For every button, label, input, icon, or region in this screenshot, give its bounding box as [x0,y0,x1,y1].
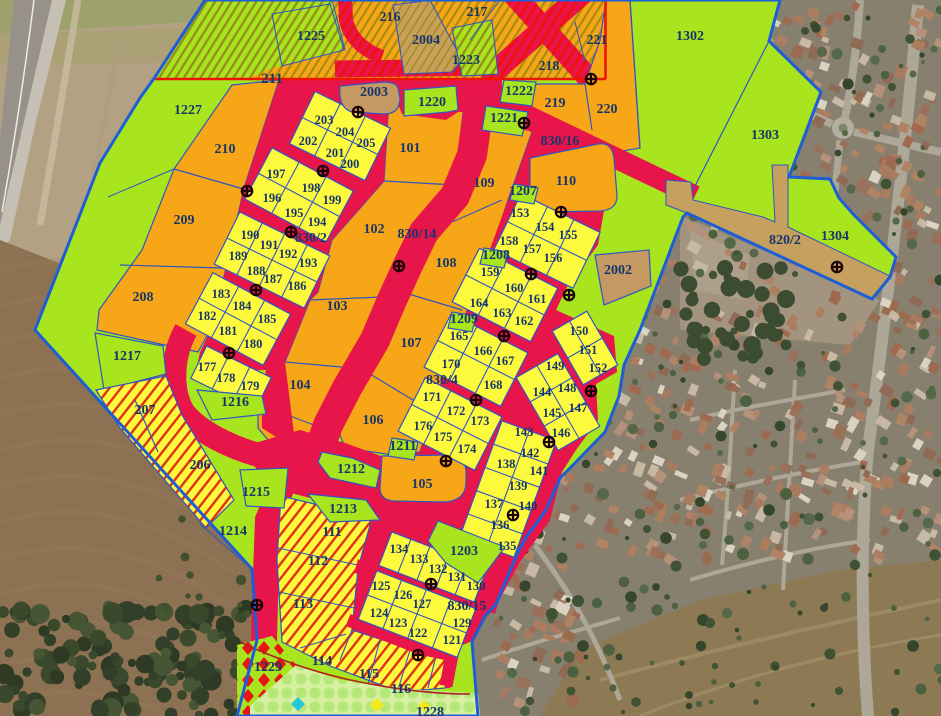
svg-text:150: 150 [570,324,589,338]
svg-text:112: 112 [308,554,328,569]
svg-text:1214: 1214 [219,524,247,539]
svg-text:1303: 1303 [751,128,779,143]
svg-text:1220: 1220 [418,95,446,110]
svg-text:126: 126 [394,588,413,602]
svg-text:1217: 1217 [113,349,141,364]
svg-text:830/2: 830/2 [295,231,327,246]
svg-text:163: 163 [493,306,512,320]
svg-text:158: 158 [500,234,519,248]
svg-text:200: 200 [341,157,360,171]
svg-text:208: 208 [133,290,154,305]
svg-text:105: 105 [412,477,433,492]
svg-text:176: 176 [414,419,433,433]
svg-text:107: 107 [401,336,422,351]
svg-text:1229: 1229 [254,660,282,675]
svg-text:133: 133 [410,552,429,566]
svg-text:179: 179 [241,379,260,393]
svg-text:147: 147 [569,401,588,415]
svg-text:123: 123 [389,616,408,630]
svg-text:190: 190 [241,228,260,242]
svg-text:125: 125 [372,579,391,593]
svg-text:1207: 1207 [509,184,537,199]
svg-text:830/16: 830/16 [541,134,580,149]
svg-text:206: 206 [190,458,211,473]
svg-text:113: 113 [293,597,313,612]
svg-text:146: 146 [552,426,571,440]
svg-text:1227: 1227 [174,103,202,118]
svg-text:160: 160 [505,281,524,295]
svg-text:1216: 1216 [221,395,249,410]
svg-text:130: 130 [467,579,486,593]
svg-text:166: 166 [474,344,493,358]
svg-text:102: 102 [364,222,385,237]
svg-text:197: 197 [267,167,286,181]
svg-text:144: 144 [533,385,553,399]
svg-text:1203: 1203 [450,544,478,559]
svg-text:155: 155 [559,228,578,242]
svg-text:193: 193 [299,256,318,270]
svg-text:189: 189 [229,249,248,263]
svg-text:1302: 1302 [676,29,704,44]
svg-text:134: 134 [390,542,410,556]
svg-text:195: 195 [285,206,304,220]
svg-text:165: 165 [450,329,469,343]
svg-text:168: 168 [484,378,503,392]
svg-text:1212: 1212 [337,462,365,477]
svg-text:199: 199 [323,193,342,207]
svg-text:151: 151 [579,343,598,357]
svg-text:153: 153 [511,206,530,220]
svg-text:138: 138 [497,457,516,471]
svg-text:1304: 1304 [821,229,849,244]
svg-text:182: 182 [198,309,217,323]
svg-text:149: 149 [546,359,565,373]
svg-text:164: 164 [470,296,490,310]
svg-text:2002: 2002 [604,263,632,278]
svg-text:173: 173 [471,414,490,428]
svg-text:205: 205 [357,136,376,150]
svg-text:143: 143 [515,425,534,439]
svg-text:156: 156 [544,251,563,265]
svg-text:221: 221 [587,33,608,48]
svg-text:121: 121 [443,633,462,647]
svg-text:1213: 1213 [329,502,357,517]
svg-text:1223: 1223 [452,53,480,68]
svg-text:1225: 1225 [297,29,325,44]
svg-text:170: 170 [442,357,461,371]
svg-text:830/4: 830/4 [426,373,458,388]
svg-text:202: 202 [299,134,318,148]
svg-text:101: 101 [400,141,421,156]
svg-text:157: 157 [523,242,542,256]
svg-text:194: 194 [308,215,328,229]
svg-text:175: 175 [434,430,453,444]
svg-text:185: 185 [258,312,277,326]
svg-text:196: 196 [263,191,282,205]
svg-text:178: 178 [217,371,236,385]
svg-text:184: 184 [233,299,253,313]
svg-text:104: 104 [290,378,311,393]
svg-text:211: 211 [261,71,283,87]
svg-text:131: 131 [448,570,467,584]
svg-text:1209: 1209 [450,312,478,327]
svg-text:180: 180 [244,337,263,351]
svg-text:192: 192 [279,247,298,261]
svg-text:154: 154 [536,220,556,234]
svg-text:167: 167 [496,354,515,368]
svg-text:141: 141 [530,464,549,478]
svg-text:220: 220 [597,102,618,117]
svg-text:114: 114 [312,654,332,669]
svg-text:140: 140 [519,499,538,513]
svg-text:216: 216 [380,10,401,25]
svg-text:210: 210 [215,142,236,157]
svg-text:198: 198 [302,181,321,195]
svg-text:127: 127 [413,597,432,611]
svg-text:181: 181 [219,324,238,338]
svg-text:172: 172 [447,404,466,418]
svg-text:106: 106 [363,413,384,428]
svg-text:110: 110 [556,174,576,189]
svg-text:1211: 1211 [389,439,416,454]
svg-text:204: 204 [336,125,356,139]
svg-text:145: 145 [543,406,562,420]
svg-text:136: 136 [491,518,510,532]
svg-text:109: 109 [474,176,495,191]
svg-text:162: 162 [515,314,534,328]
svg-text:203: 203 [315,113,334,127]
svg-text:219: 219 [545,96,566,111]
svg-text:191: 191 [260,238,279,252]
svg-text:2004: 2004 [412,33,440,48]
svg-text:2003: 2003 [360,85,388,100]
svg-text:161: 161 [528,292,547,306]
svg-text:188: 188 [247,264,266,278]
svg-text:1208: 1208 [482,248,510,263]
svg-text:137: 137 [485,497,504,511]
svg-text:122: 122 [409,626,428,640]
svg-text:139: 139 [509,479,528,493]
svg-text:830/15: 830/15 [448,599,487,614]
svg-text:187: 187 [264,272,283,286]
svg-text:1228: 1228 [416,705,444,716]
svg-text:132: 132 [429,562,448,576]
svg-text:103: 103 [327,299,348,314]
svg-text:108: 108 [436,256,457,271]
svg-text:152: 152 [589,361,608,375]
svg-text:1221: 1221 [490,111,518,126]
svg-text:820/2: 820/2 [769,233,801,248]
svg-text:116: 116 [391,682,411,697]
svg-text:218: 218 [539,59,560,74]
svg-text:209: 209 [174,213,195,228]
svg-text:111: 111 [322,525,341,540]
svg-text:207: 207 [135,403,156,418]
svg-text:135: 135 [498,539,517,553]
svg-text:1222: 1222 [505,84,533,99]
svg-text:177: 177 [198,360,217,374]
svg-text:186: 186 [288,279,307,293]
svg-text:217: 217 [467,5,488,20]
svg-text:174: 174 [458,442,478,456]
svg-text:129: 129 [453,616,472,630]
svg-text:148: 148 [558,381,577,395]
svg-text:159: 159 [481,265,500,279]
svg-text:124: 124 [370,606,390,620]
svg-text:142: 142 [521,446,540,460]
svg-text:171: 171 [423,390,442,404]
svg-text:830/14: 830/14 [398,227,437,242]
svg-text:1215: 1215 [242,485,270,500]
svg-text:115: 115 [359,667,379,682]
svg-text:183: 183 [212,287,231,301]
